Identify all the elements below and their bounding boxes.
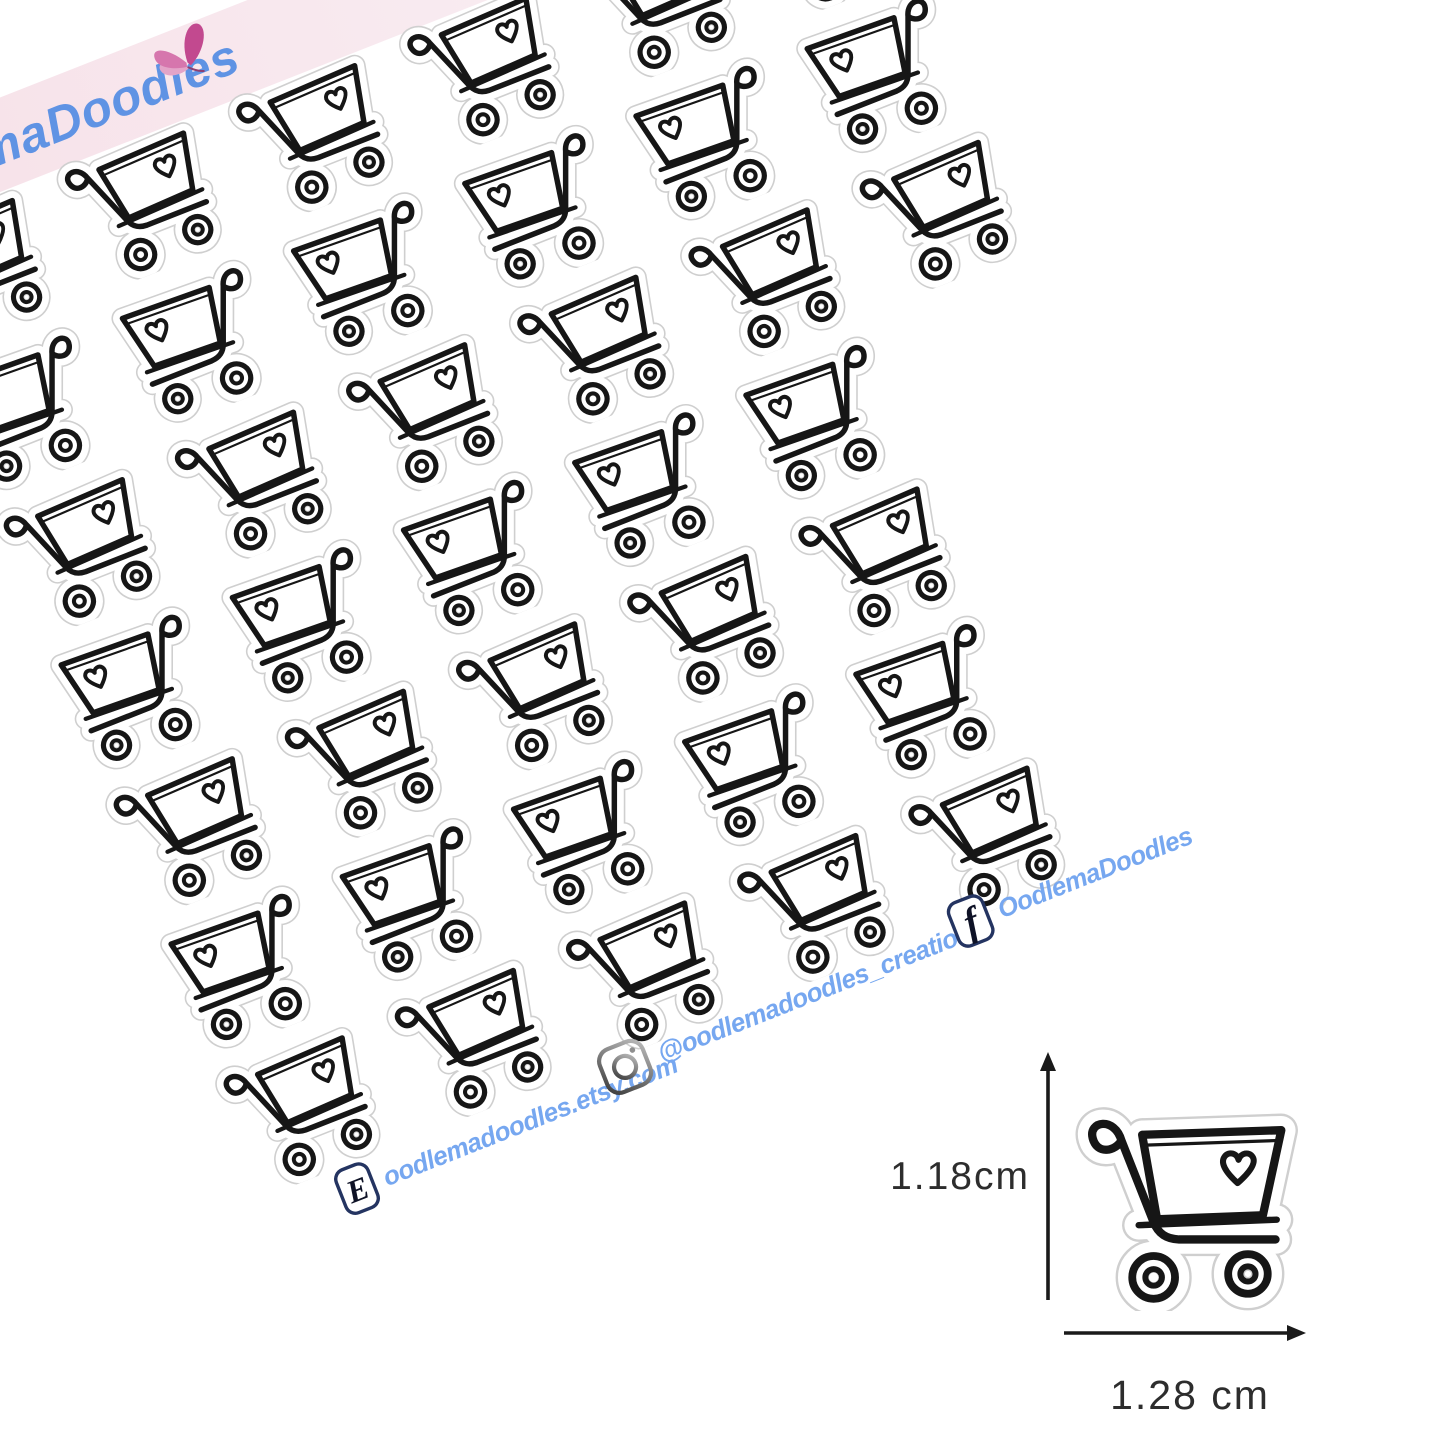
sample-sticker xyxy=(1072,1092,1302,1311)
width-label: 1.28 cm xyxy=(1070,1372,1310,1419)
height-arrow-icon xyxy=(1035,1050,1061,1304)
height-label: 1.18cm xyxy=(846,1155,1030,1199)
sticker-sheet: OodlemaDoodles E oodlemadoodles.etsy.com xyxy=(0,0,1436,1406)
width-arrow-icon xyxy=(1060,1320,1308,1346)
product-image: OodlemaDoodles E oodlemadoodles.etsy.com xyxy=(0,0,1445,1445)
